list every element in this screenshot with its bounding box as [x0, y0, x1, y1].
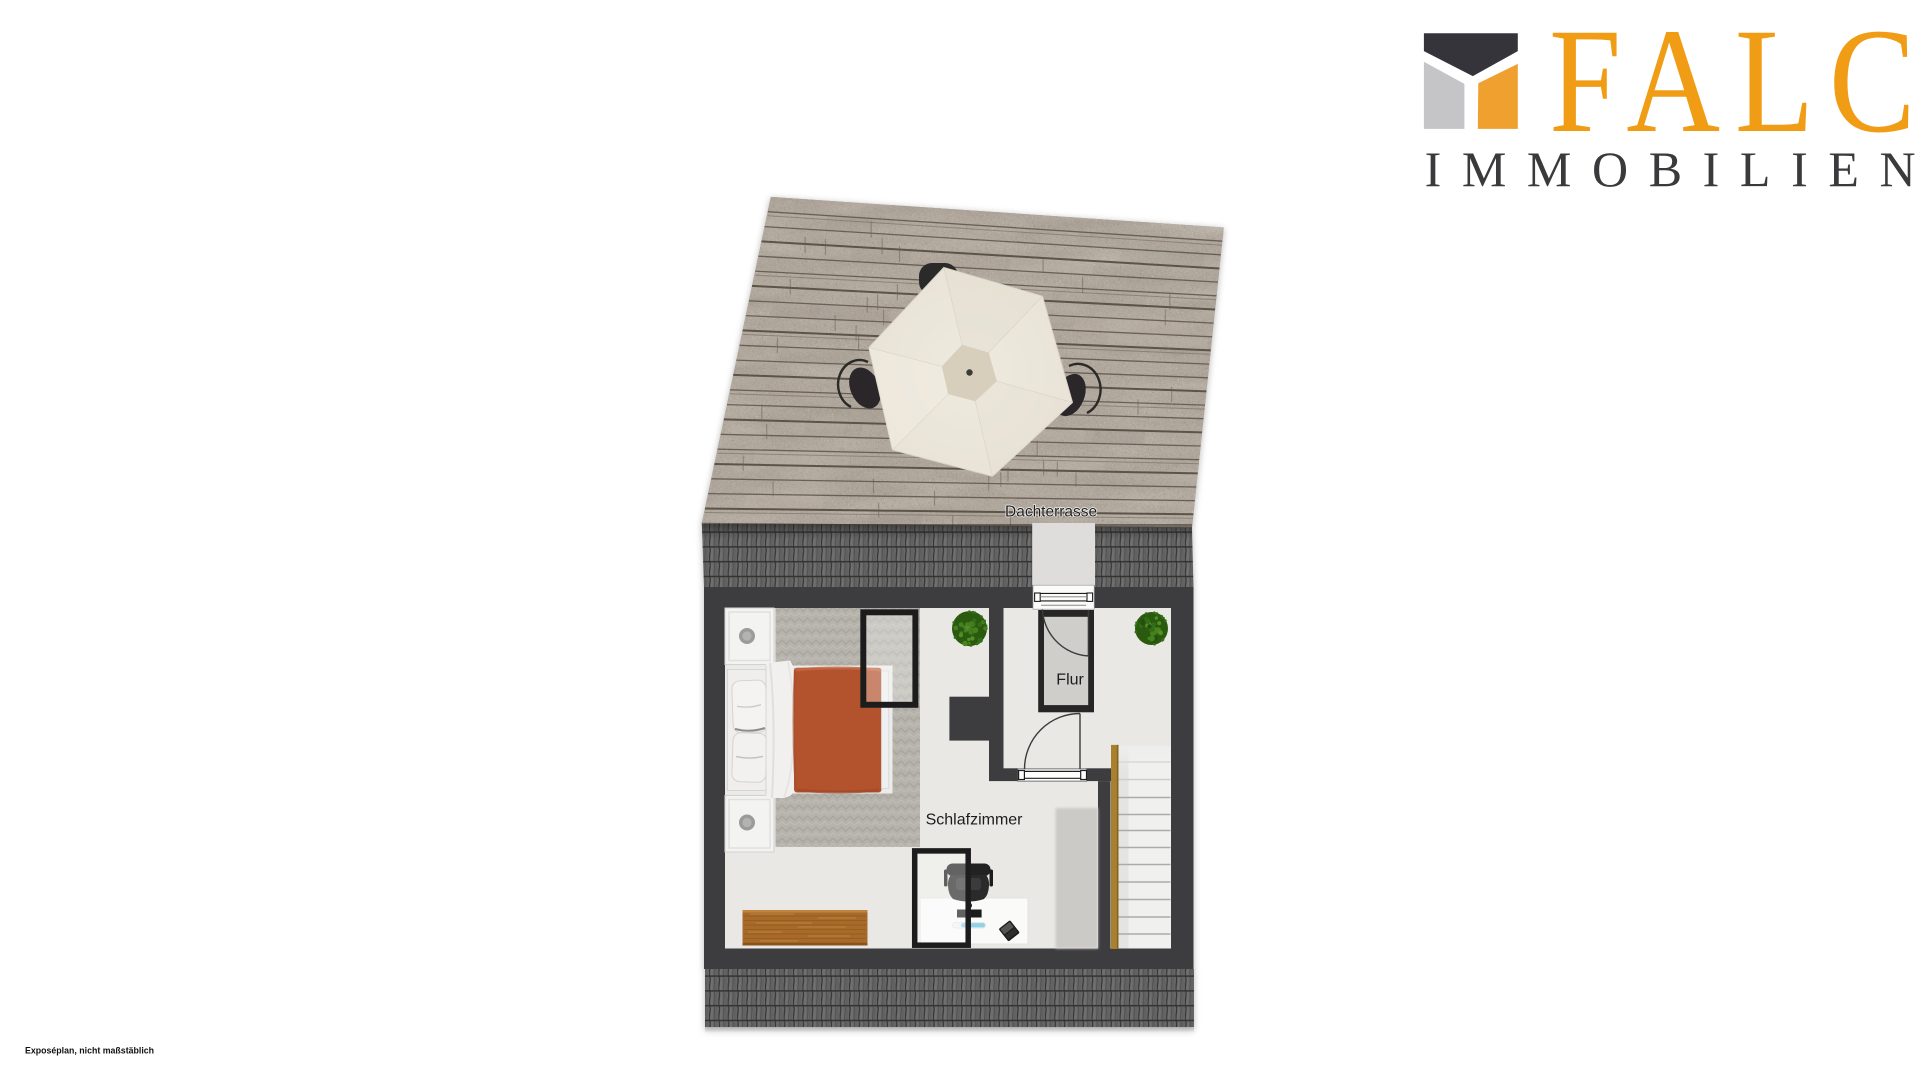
svg-text:FALC: FALC	[1549, 0, 1920, 164]
svg-text:Exposéplan, nicht maßstäblich: Exposéplan, nicht maßstäblich	[25, 1046, 154, 1056]
svg-text:Dachterrasse: Dachterrasse	[1005, 504, 1097, 521]
svg-text:Schlafzimmer: Schlafzimmer	[926, 812, 1024, 829]
svg-text:IMMOBILIEN: IMMOBILIEN	[1425, 141, 1916, 197]
svg-text:Flur: Flur	[1056, 672, 1084, 689]
